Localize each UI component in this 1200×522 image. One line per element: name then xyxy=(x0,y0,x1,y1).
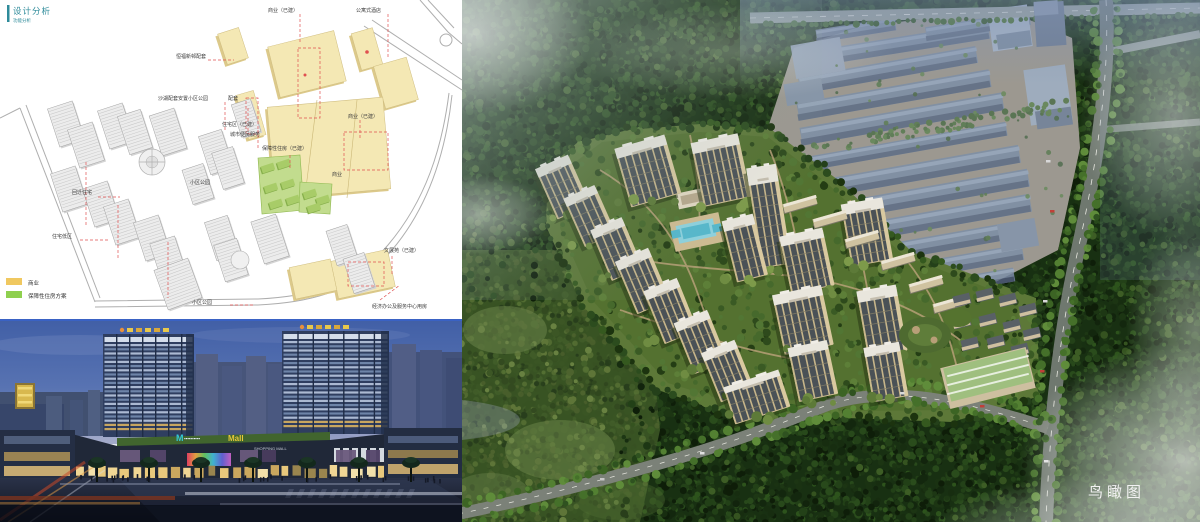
svg-text:商业: 商业 xyxy=(332,171,342,178)
svg-text:保障性住房（已建）: 保障性住房（已建） xyxy=(262,145,307,152)
svg-text:住宅低区: 住宅低区 xyxy=(52,233,72,240)
svg-text:▪▪▪▪▪▪▪▪▪▪: ▪▪▪▪▪▪▪▪▪▪ xyxy=(184,436,200,441)
svg-text:设计分析: 设计分析 xyxy=(13,6,51,16)
svg-text:保障性住房方案: 保障性住房方案 xyxy=(28,292,67,300)
svg-text:经济办公及服务中心用房: 经济办公及服务中心用房 xyxy=(372,303,427,310)
svg-text:文展苑（已建）: 文展苑（已建） xyxy=(384,247,419,254)
svg-text:配套: 配套 xyxy=(228,95,238,102)
svg-text:商业: 商业 xyxy=(28,279,40,287)
svg-text:商业（已建）: 商业（已建） xyxy=(268,7,298,14)
svg-text:沙湖配套安置小区公园: 沙湖配套安置小区公园 xyxy=(158,95,208,102)
svg-text:商业（已建）: 商业（已建） xyxy=(348,113,378,120)
svg-text:回迁住宅: 回迁住宅 xyxy=(72,189,92,196)
svg-text:城市便民服务: 城市便民服务 xyxy=(230,131,260,138)
svg-text:鸟瞰图: 鸟瞰图 xyxy=(1088,484,1145,501)
svg-text:公寓式酒店: 公寓式酒店 xyxy=(356,7,381,14)
svg-text:Mall: Mall xyxy=(228,434,244,443)
svg-text:M: M xyxy=(176,433,184,443)
svg-text:住宅区（已建）: 住宅区（已建） xyxy=(222,121,257,128)
svg-text:小区公园: 小区公园 xyxy=(192,299,212,306)
svg-text:功能分析: 功能分析 xyxy=(13,17,31,24)
svg-text:恒福新邨配套: 恒福新邨配套 xyxy=(176,53,206,60)
svg-text:小区公园: 小区公园 xyxy=(190,179,210,186)
